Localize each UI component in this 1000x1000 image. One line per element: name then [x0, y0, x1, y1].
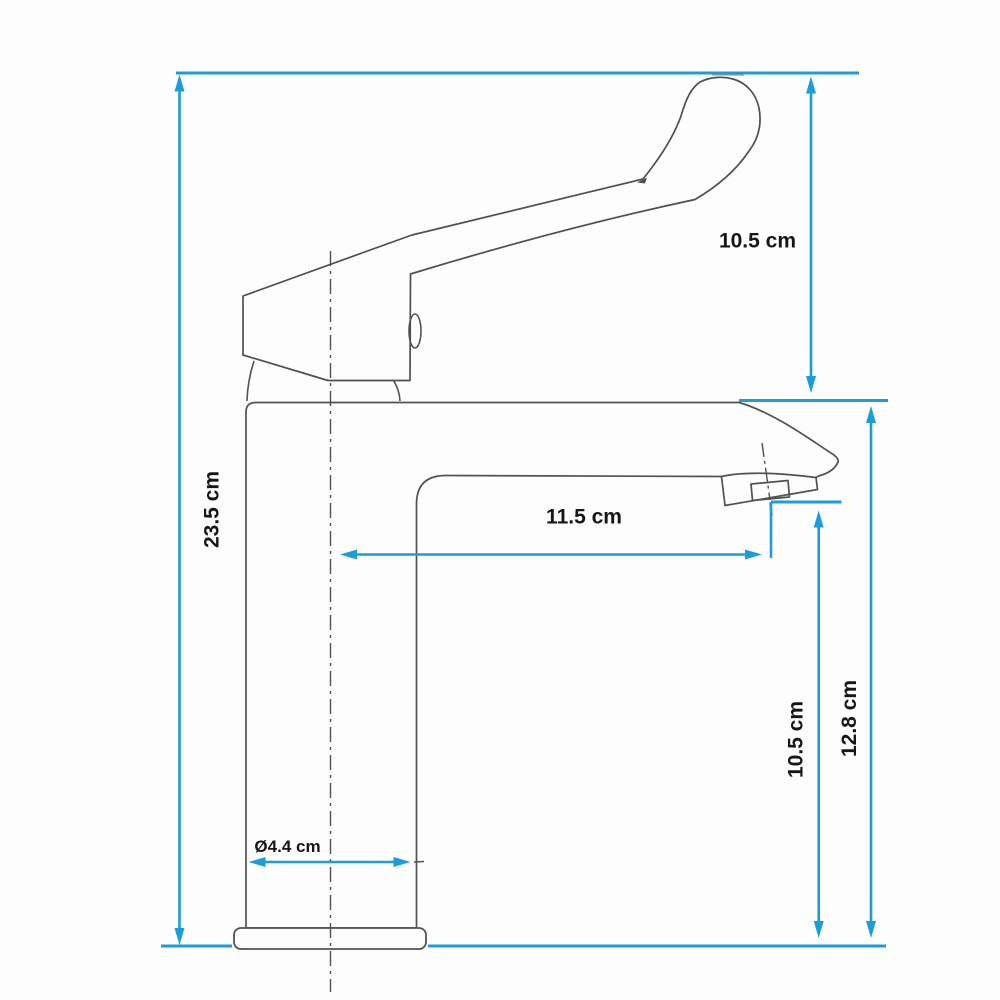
- svg-text:11.5 cm: 11.5 cm: [546, 506, 622, 529]
- svg-text:23.5 cm: 23.5 cm: [201, 471, 224, 548]
- svg-text:12.8 cm: 12.8 cm: [838, 680, 861, 757]
- svg-text:Ø4.4 cm: Ø4.4 cm: [254, 837, 320, 856]
- svg-text:10.5 cm: 10.5 cm: [719, 230, 796, 253]
- svg-text:10.5 cm: 10.5 cm: [784, 701, 807, 778]
